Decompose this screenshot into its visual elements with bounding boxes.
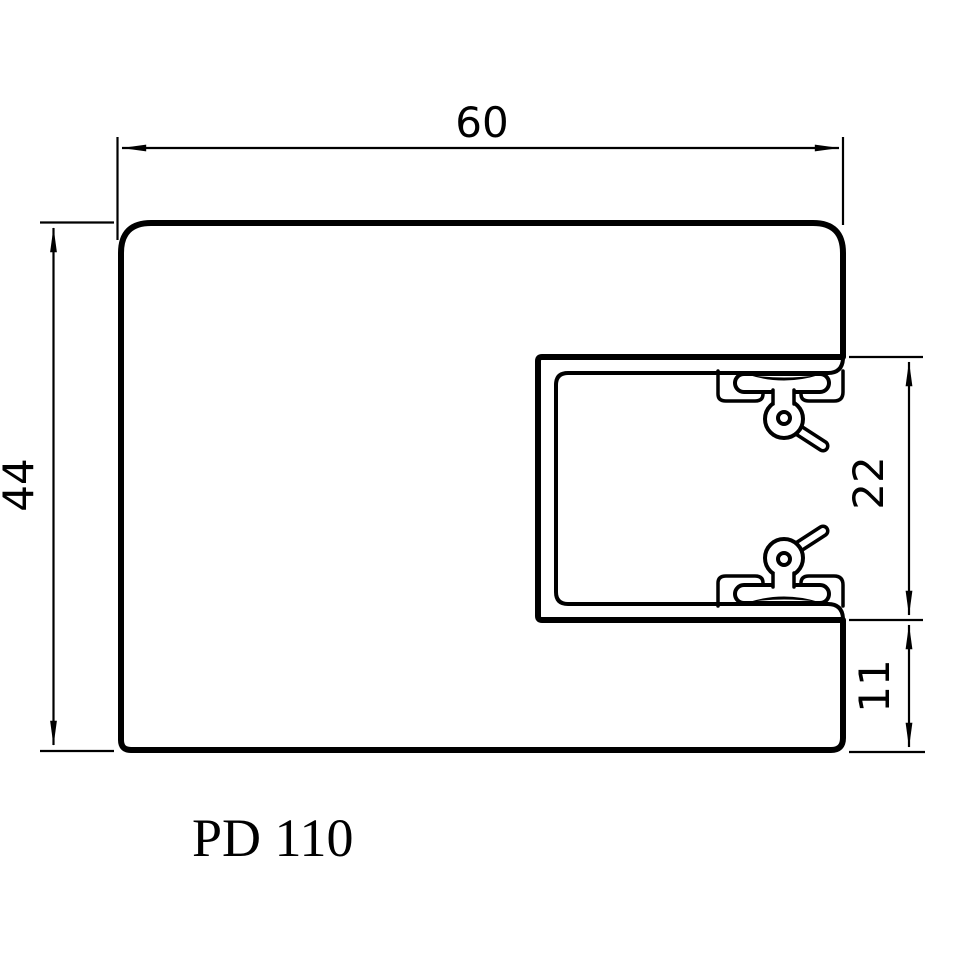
dimension-left-height: 44 [0, 223, 114, 752]
gasket-bulb-hole [778, 553, 790, 565]
dimension-label-60: 60 [455, 98, 508, 147]
glazing-gasket-top [735, 374, 829, 446]
dimension-top-width: 60 [118, 98, 844, 240]
gasket-t-head [735, 585, 829, 603]
dimension-label-44: 44 [0, 458, 43, 511]
technical-drawing-page: 60 44 22 11 PD 110 [0, 0, 960, 960]
dimension-label-22: 22 [844, 456, 893, 509]
gasket-bulb-hole [778, 412, 790, 424]
gasket-stem-body [774, 573, 793, 588]
dimension-slot-height: 22 [844, 357, 923, 620]
aluminum-profile [121, 223, 843, 750]
glazing-gasket-bottom [735, 531, 829, 603]
gasket-stem-body [774, 390, 793, 405]
profile-outline [121, 223, 843, 750]
gasket-t-head [735, 374, 829, 392]
profile-name-label: PD 110 [192, 808, 354, 868]
profile-cross-section-drawing: 60 44 22 11 PD 110 [0, 0, 960, 960]
dimension-bottom-lip: 11 [849, 625, 925, 752]
dimension-label-11: 11 [850, 659, 899, 712]
